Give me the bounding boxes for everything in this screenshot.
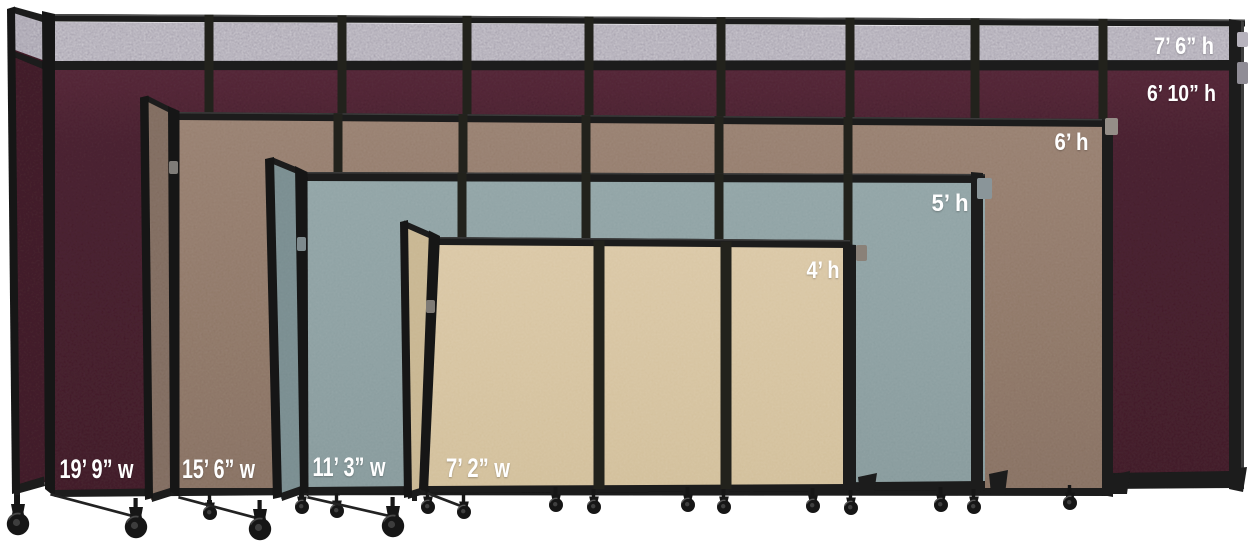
svg-text:6’ h: 6’ h	[1055, 129, 1089, 156]
svg-text:6’ 10” h: 6’ 10” h	[1147, 80, 1216, 106]
svg-text:7’ 6” h: 7’ 6” h	[1154, 33, 1214, 60]
svg-text:4’ h: 4’ h	[807, 257, 840, 284]
svg-text:15’ 6” w: 15’ 6” w	[182, 454, 256, 484]
svg-text:11’ 3” w: 11’ 3” w	[313, 452, 387, 482]
svg-text:5’ h: 5’ h	[932, 190, 969, 217]
svg-text:19’ 9” w: 19’ 9” w	[60, 454, 135, 484]
svg-text:7’ 2” w: 7’ 2” w	[446, 453, 511, 483]
